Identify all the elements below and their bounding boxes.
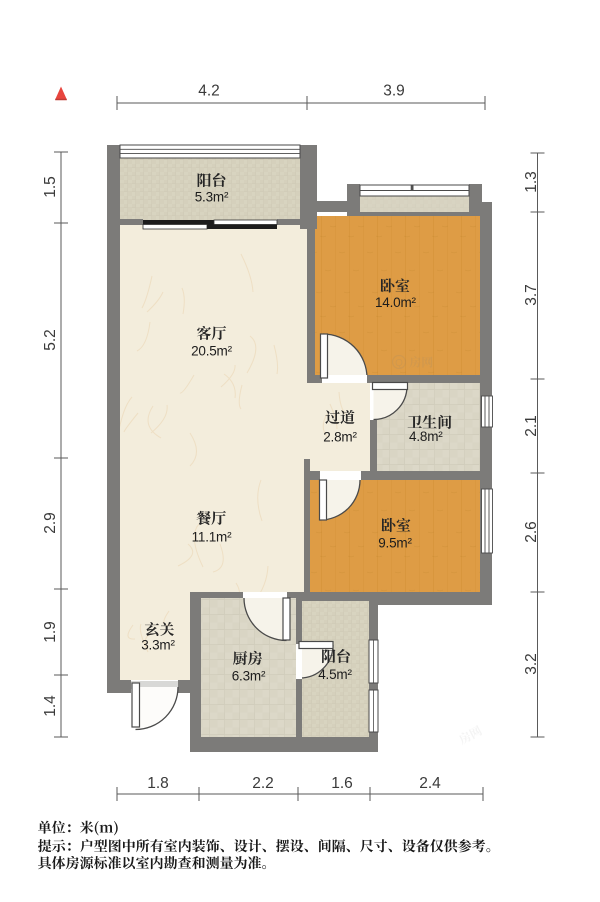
svg-text:3.7: 3.7 (523, 284, 540, 306)
svg-text:11.1m²: 11.1m² (192, 529, 233, 544)
svg-text:5.2: 5.2 (42, 329, 59, 351)
svg-text:14.0m²: 14.0m² (375, 295, 417, 310)
svg-text:2.6: 2.6 (523, 521, 540, 543)
svg-text:1.6: 1.6 (331, 775, 353, 792)
svg-text:1.8: 1.8 (147, 775, 169, 792)
svg-text:3.3m²: 3.3m² (141, 637, 175, 652)
svg-text:1.5: 1.5 (42, 176, 59, 198)
svg-text:2.4: 2.4 (419, 775, 441, 792)
svg-text:4.8m²: 4.8m² (409, 429, 443, 444)
svg-text:1.9: 1.9 (42, 621, 59, 643)
svg-text:9.5m²: 9.5m² (378, 535, 412, 550)
svg-text:1.3: 1.3 (523, 171, 540, 193)
svg-text:3.9: 3.9 (383, 83, 405, 100)
svg-text:3.2: 3.2 (523, 653, 540, 675)
svg-text:2.9: 2.9 (42, 512, 59, 534)
svg-text:2.2: 2.2 (252, 775, 274, 792)
svg-text:5.3m²: 5.3m² (195, 189, 229, 204)
svg-text:4.2: 4.2 (198, 83, 220, 100)
svg-text:Q: Q (395, 358, 403, 369)
svg-text:1.4: 1.4 (42, 695, 59, 717)
svg-text:6.3m²: 6.3m² (232, 668, 266, 683)
svg-text:4.5m²: 4.5m² (318, 667, 352, 682)
svg-text:20.5m²: 20.5m² (191, 343, 233, 358)
svg-text:2.8m²: 2.8m² (323, 430, 357, 445)
svg-text:2.1: 2.1 (523, 415, 540, 437)
